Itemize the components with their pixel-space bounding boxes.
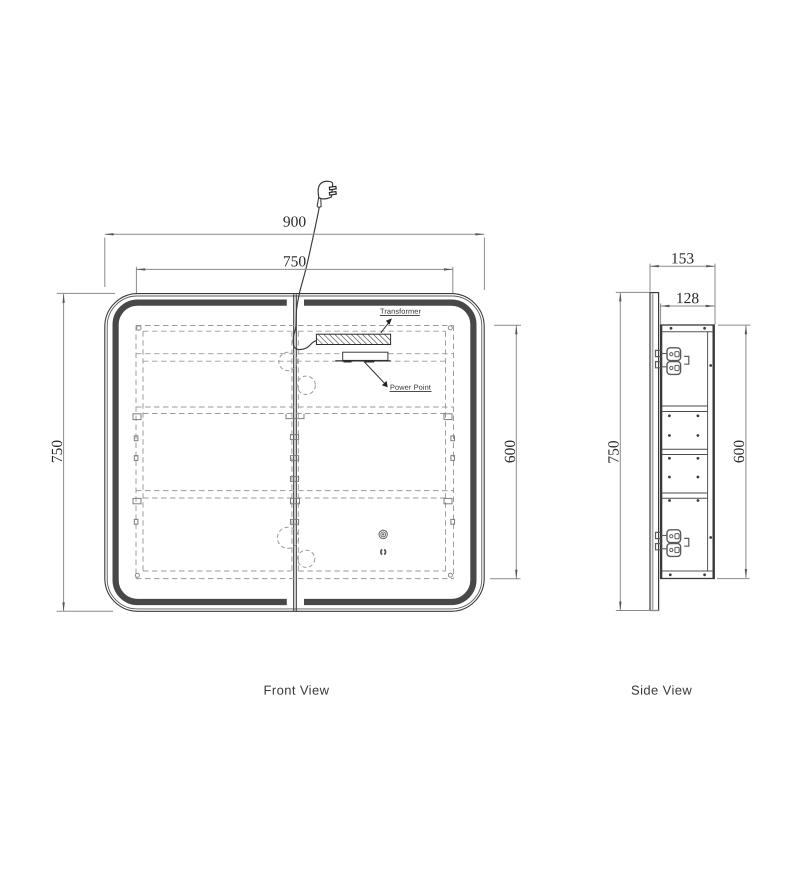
svg-text:600: 600 bbox=[502, 440, 519, 464]
svg-text:750: 750 bbox=[283, 253, 307, 270]
svg-text:600: 600 bbox=[731, 440, 748, 464]
svg-text:Front View: Front View bbox=[263, 683, 329, 698]
svg-text:750: 750 bbox=[605, 440, 622, 464]
svg-text:900: 900 bbox=[283, 214, 307, 231]
svg-text:750: 750 bbox=[49, 440, 66, 464]
svg-text:Power Point: Power Point bbox=[390, 383, 431, 392]
svg-text:153: 153 bbox=[671, 250, 695, 267]
svg-text:128: 128 bbox=[676, 290, 700, 307]
svg-text:Side View: Side View bbox=[631, 683, 692, 698]
svg-text:Transformer: Transformer bbox=[380, 307, 422, 316]
